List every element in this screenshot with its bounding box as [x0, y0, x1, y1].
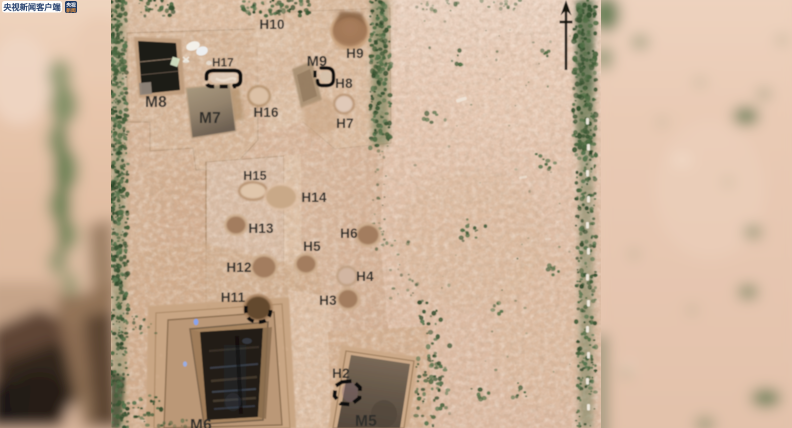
svg-text:M5: M5	[355, 413, 377, 428]
svg-text:H11: H11	[221, 290, 246, 305]
svg-text:H7: H7	[336, 116, 354, 131]
svg-text:H14: H14	[301, 190, 327, 205]
svg-text:H15: H15	[243, 169, 267, 183]
svg-text:H6: H6	[340, 226, 358, 241]
svg-text:H4: H4	[356, 269, 374, 284]
svg-text:H5: H5	[303, 239, 321, 254]
svg-text:新闻: 新闻	[66, 7, 76, 14]
svg-text:央视: 央视	[66, 2, 76, 9]
svg-text:M9: M9	[307, 54, 328, 70]
svg-text:H10: H10	[259, 17, 284, 32]
svg-text:H12: H12	[226, 260, 251, 275]
svg-text:H13: H13	[248, 221, 274, 236]
svg-text:H2: H2	[332, 366, 350, 381]
svg-text:央视新闻客户端: 央视新闻客户端	[3, 2, 60, 12]
svg-text:H8: H8	[335, 76, 353, 91]
svg-text:M7: M7	[199, 110, 221, 127]
svg-text:H17: H17	[212, 58, 234, 70]
svg-text:H3: H3	[319, 293, 337, 308]
svg-text:M6: M6	[190, 417, 212, 428]
svg-text:H9: H9	[346, 46, 364, 61]
svg-text:M8: M8	[145, 94, 167, 111]
svg-text:H16: H16	[253, 105, 279, 120]
